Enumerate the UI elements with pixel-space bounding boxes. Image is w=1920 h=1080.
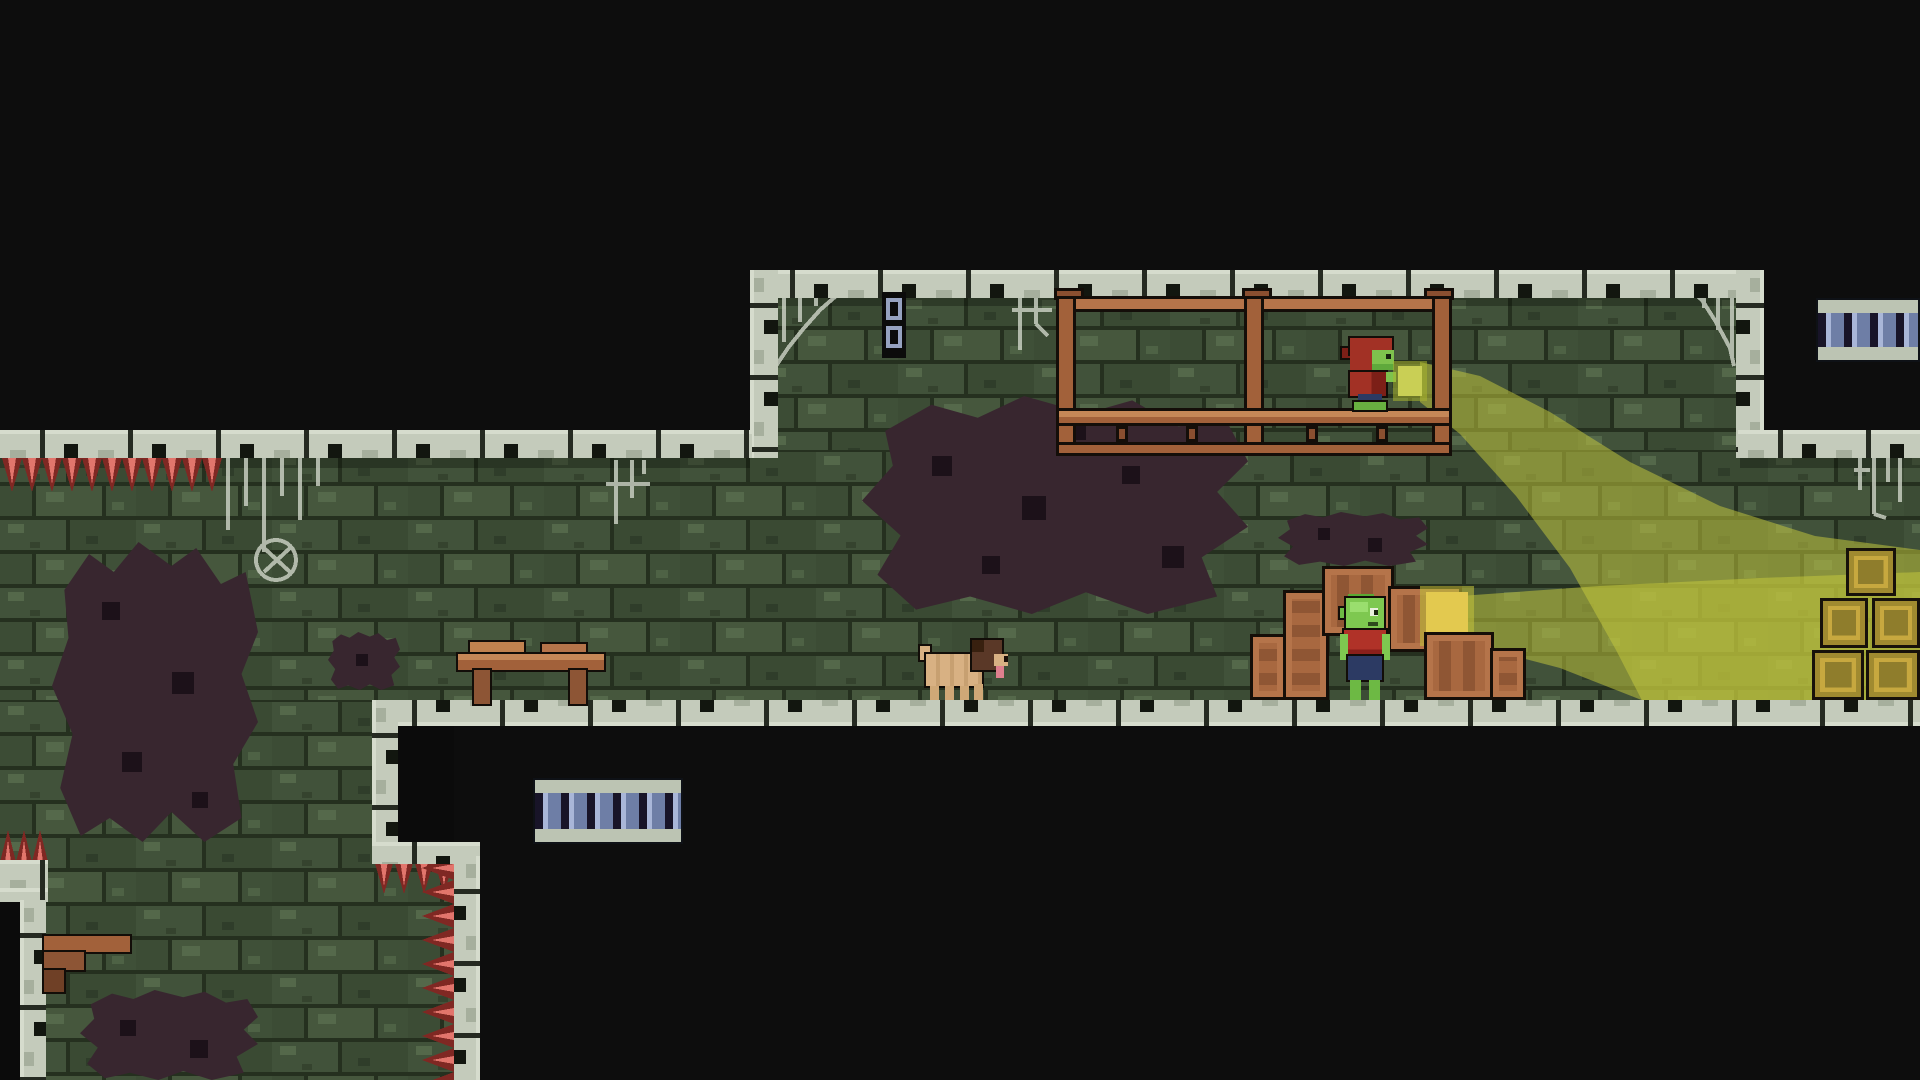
table-item — [470, 642, 524, 654]
gold-block[interactable] — [1820, 598, 1868, 648]
goblin-face — [1372, 350, 1394, 370]
goblin-lantern[interactable] — [1398, 366, 1422, 396]
cobweb-hanging — [602, 458, 656, 532]
goblin-eye — [1386, 354, 1391, 359]
goblin-arm — [1340, 634, 1348, 660]
game-viewport[interactable] — [0, 0, 1920, 1080]
left-spike-ledge — [0, 860, 48, 902]
stain-spot — [932, 456, 952, 476]
walkway-strut — [1116, 426, 1128, 442]
goblin-head-highlight — [1350, 602, 1368, 612]
hall-floor-ledge — [372, 700, 1920, 726]
goblin-leg — [1369, 680, 1380, 700]
gold-block[interactable] — [1812, 650, 1864, 700]
gold-block[interactable] — [1872, 598, 1920, 648]
wooden-table[interactable] — [458, 642, 604, 704]
walkway-post — [1432, 296, 1452, 456]
stain-spot — [356, 654, 368, 666]
dog-leg — [960, 686, 969, 700]
small-crate[interactable] — [1490, 648, 1526, 700]
dog-leg — [945, 686, 954, 700]
walkway-strut — [1186, 426, 1198, 442]
dog-leg — [930, 686, 939, 700]
crate[interactable] — [1424, 632, 1494, 700]
void-gap — [396, 726, 454, 844]
wall-spikes-left — [420, 856, 454, 1080]
hooded-goblin[interactable] — [1342, 338, 1404, 410]
walkway-strut — [1306, 426, 1318, 442]
goblin-leg — [1350, 680, 1361, 700]
hall-ceiling-right — [1738, 430, 1920, 458]
stain-spot — [102, 602, 120, 620]
stain-spot — [192, 792, 208, 808]
floor-spikes-up — [0, 826, 48, 862]
ceiling-spikes — [2, 458, 222, 494]
dog-leg — [974, 684, 983, 700]
dog-nose — [1004, 656, 1008, 662]
goblin-shirt — [1344, 630, 1386, 656]
walkway-platform — [1056, 408, 1452, 426]
chain-link[interactable] — [886, 326, 902, 348]
dog[interactable] — [920, 640, 1008, 700]
stain-spot — [122, 752, 142, 772]
floating-ladder-platform[interactable] — [533, 778, 683, 844]
walkway-post — [1056, 296, 1076, 456]
cobweb-hanging — [1850, 452, 1908, 522]
shelf-support — [44, 952, 84, 970]
stain-spot — [1162, 546, 1184, 568]
dog-tongue — [996, 666, 1004, 678]
table-top — [458, 654, 604, 670]
goblin-mouth — [1368, 622, 1378, 626]
goblin-pupil — [1374, 610, 1378, 615]
gold-block[interactable] — [1866, 650, 1920, 700]
chain-link[interactable] — [886, 298, 902, 320]
small-crate[interactable] — [1250, 634, 1286, 700]
stain-spot — [1122, 466, 1140, 484]
lower-wall-upper — [372, 700, 398, 846]
table-leg — [570, 670, 586, 704]
shelf-plank — [44, 936, 130, 952]
left-lower-wall — [20, 900, 46, 1080]
walkway-bottom-rail — [1056, 442, 1452, 456]
goblin-villager[interactable] — [1340, 594, 1390, 700]
goblin-hand — [1386, 372, 1396, 382]
stain-spot — [190, 1040, 208, 1058]
stain-spot — [1368, 538, 1382, 552]
walkway-post — [1244, 296, 1264, 456]
hall-ceiling-left — [0, 430, 752, 458]
void-gap — [0, 902, 20, 1080]
chain-recess — [882, 292, 906, 358]
shelf-support — [44, 970, 64, 992]
goblin-feet — [1354, 402, 1386, 410]
tiny-stain — [328, 632, 400, 690]
stain-spot — [982, 556, 1000, 574]
stain-spot — [120, 1020, 136, 1036]
floating-ladder-platform[interactable] — [1816, 298, 1920, 362]
small-wall-stain — [1278, 512, 1428, 566]
stain-spot — [172, 672, 194, 694]
table-item — [542, 644, 586, 654]
cobweb-large-with-ring — [220, 456, 340, 588]
walkway-strut — [1376, 426, 1388, 442]
lower-wall-lower — [454, 856, 480, 1080]
stain-spot — [1022, 496, 1046, 520]
alcove-left-wall — [750, 270, 778, 458]
broken-shelf[interactable] — [44, 936, 130, 992]
stain-spot — [1318, 528, 1330, 540]
goblin-pants — [1348, 656, 1382, 680]
table-leg — [474, 670, 490, 704]
bottom-corner-stain — [80, 990, 258, 1080]
dog-ear — [972, 640, 984, 652]
goblin-arm — [1382, 634, 1390, 660]
gold-block[interactable] — [1846, 548, 1896, 596]
goblin-cloak — [1350, 372, 1386, 396]
